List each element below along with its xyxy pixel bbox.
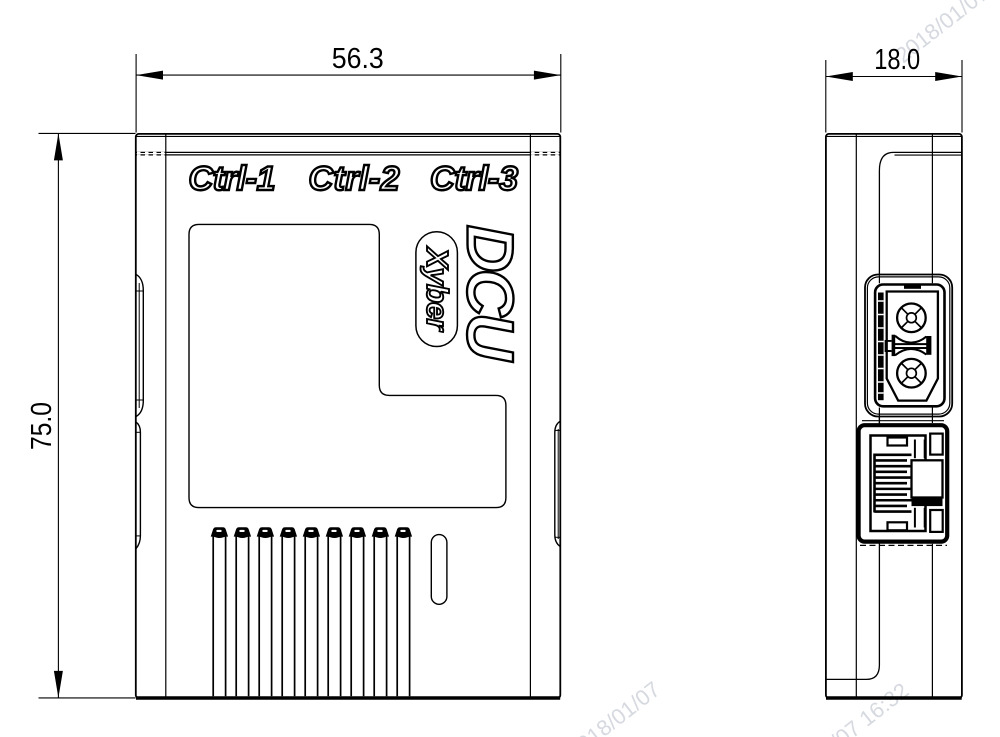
svg-text:Xyber: Xyber bbox=[420, 246, 455, 333]
svg-text:18.0: 18.0 bbox=[874, 44, 920, 76]
svg-text:Ctrl-2: Ctrl-2 bbox=[309, 160, 400, 198]
svg-text:DCU: DCU bbox=[454, 225, 528, 363]
svg-text:75.0: 75.0 bbox=[26, 402, 58, 450]
svg-text:56.3: 56.3 bbox=[332, 43, 384, 75]
svg-text:Ctrl-3: Ctrl-3 bbox=[430, 160, 518, 198]
svg-text:Ctrl-1: Ctrl-1 bbox=[189, 160, 276, 198]
